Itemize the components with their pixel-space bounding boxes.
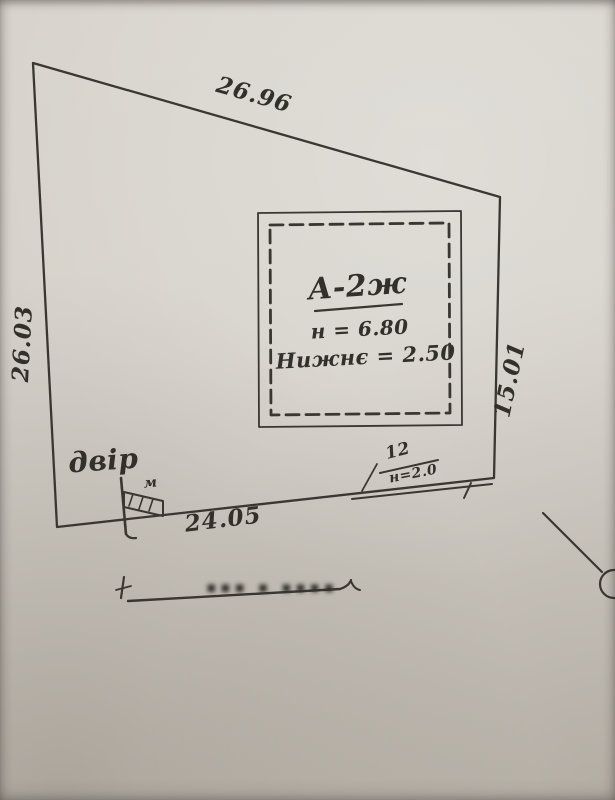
site-plan-drawing: А-2ж н = 6.80 Нижнє = 2.50 26.96 26.03 1…: [0, 0, 615, 800]
building-height-label: н = 6.80: [310, 314, 409, 343]
fence-height-label: н=2.0: [388, 462, 439, 487]
corner-marker-circle: [600, 570, 615, 598]
dimension-bottom: 24.05: [182, 501, 263, 537]
footer-bracket-hook: [351, 581, 360, 590]
corner-leader-line: [543, 513, 602, 572]
dimension-left: 26.03: [7, 304, 38, 383]
footer-blurred-label: ▪▪▪ ▪ ▪▪▪▪: [206, 578, 338, 596]
yard-label: двір: [67, 442, 139, 480]
scanned-plan-photo: А-2ж н = 6.80 Нижнє = 2.50 26.96 26.03 1…: [0, 0, 615, 800]
building-designation-label: А-2ж: [305, 266, 408, 308]
gate-symbol: м: [121, 474, 163, 538]
gate-mark-label: м: [143, 474, 158, 491]
corner-marker: [543, 513, 615, 598]
fence-tick: [464, 483, 471, 498]
gate-post-foot: [126, 534, 136, 538]
fence-number-label: 12: [383, 438, 412, 463]
gate-flag-hatch: [139, 497, 143, 509]
footer-annotation: ▪▪▪ ▪ ▪▪▪▪: [116, 577, 360, 601]
footer-bracket-curl: [340, 580, 351, 589]
dimension-right: 15.01: [488, 339, 530, 420]
gate-flag-hatch: [129, 494, 133, 506]
gate-flag-hatch: [149, 499, 153, 511]
dimension-top: 26.96: [212, 71, 294, 118]
fence-leader-tick: [362, 464, 377, 491]
building-second-note-label: Нижнє = 2.50: [274, 339, 456, 373]
fence-annotation: 12 н=2.0: [362, 438, 439, 491]
